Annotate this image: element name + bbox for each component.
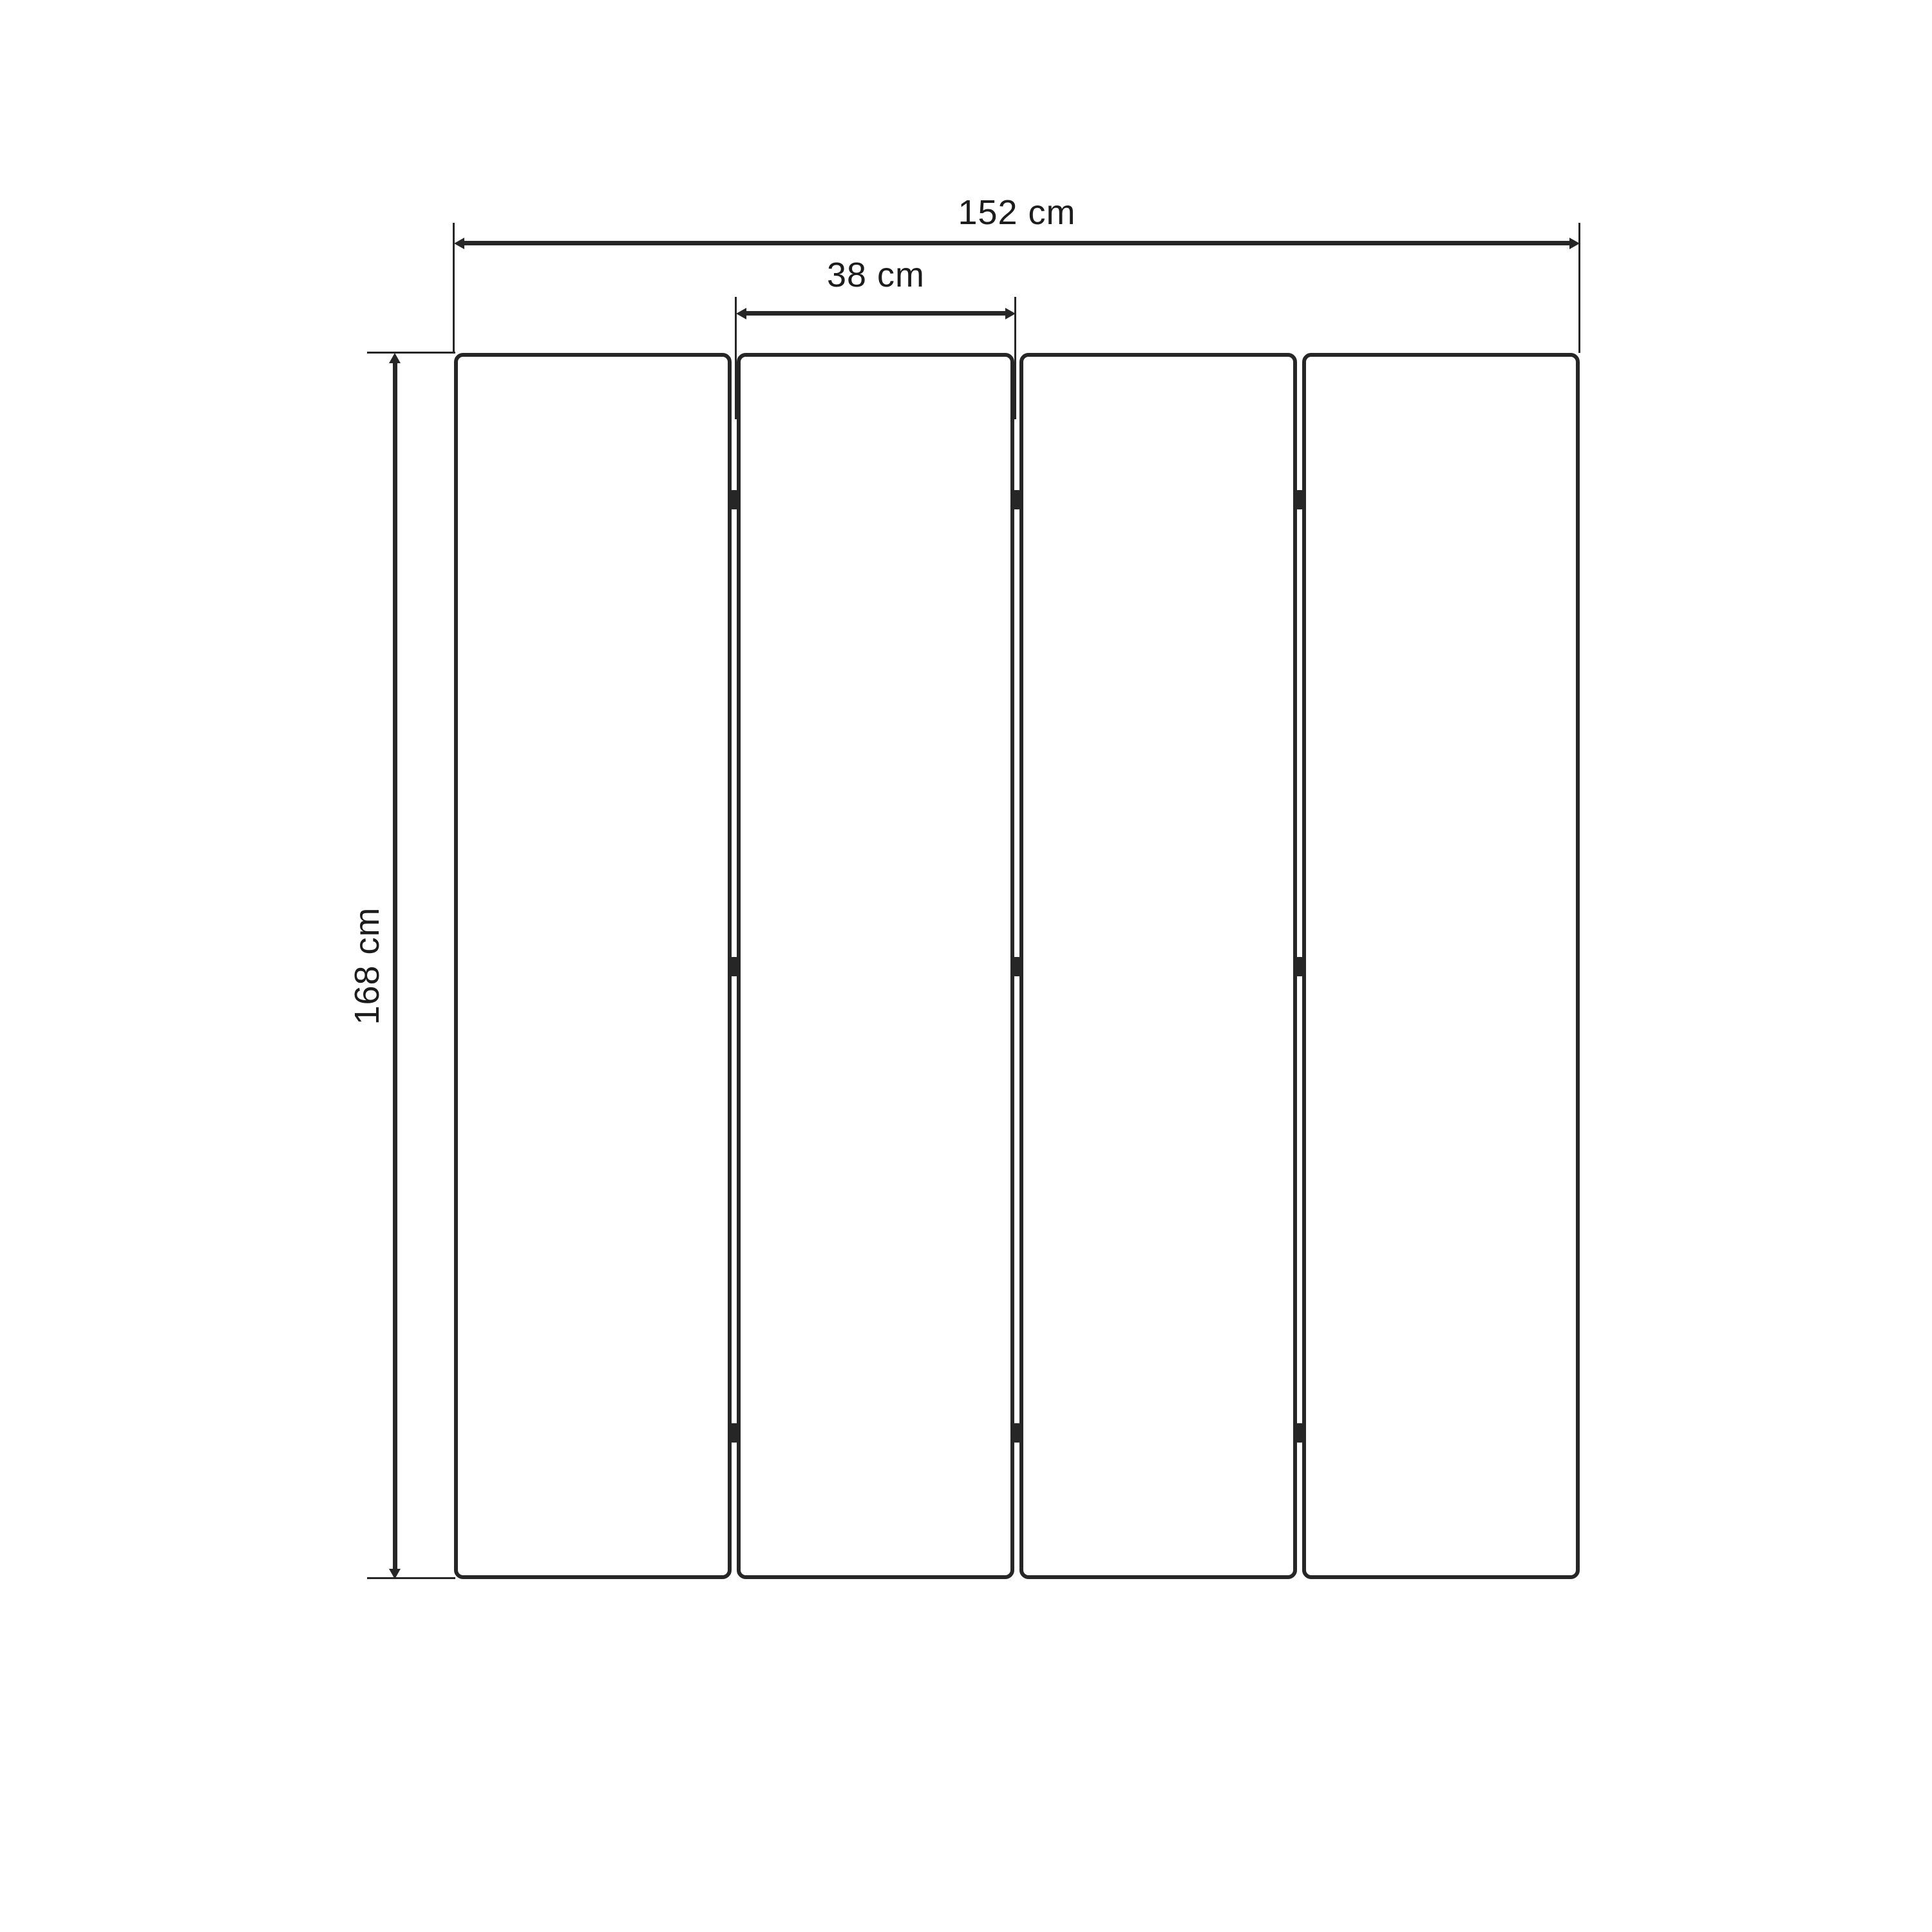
height-dimension-label: 168 cm	[347, 907, 387, 1025]
panel-width-arrow-left-icon	[736, 308, 746, 319]
hinge-gap1-middle	[730, 957, 738, 976]
hinge-gap3-top	[1296, 490, 1303, 509]
panel-2	[737, 353, 1014, 1579]
panel-4	[1302, 353, 1580, 1579]
hinge-gap2-top	[1013, 490, 1021, 509]
width-dimension-line	[463, 241, 1571, 245]
panel-3	[1019, 353, 1297, 1579]
height-extension-line-bottom	[367, 1577, 455, 1579]
hinge-gap3-bottom	[1296, 1423, 1303, 1443]
folding-screen-dimension-diagram: 152 cm 38 cm 168 cm	[0, 0, 1932, 1932]
height-arrow-down-icon	[389, 1569, 401, 1579]
width-arrow-right-icon	[1569, 238, 1580, 249]
hinge-gap1-top	[730, 490, 738, 509]
width-arrow-left-icon	[454, 238, 464, 249]
hinge-gap1-bottom	[730, 1423, 738, 1443]
hinge-gap3-middle	[1296, 957, 1303, 976]
panel-width-dimension-label: 38 cm	[827, 255, 925, 295]
height-extension-line-top	[367, 352, 455, 354]
width-dimension-label: 152 cm	[958, 193, 1075, 232]
panel-width-arrow-right-icon	[1005, 308, 1016, 319]
hinge-gap2-bottom	[1013, 1423, 1021, 1443]
height-dimension-line	[393, 362, 397, 1570]
hinge-gap2-middle	[1013, 957, 1021, 976]
panel-width-dimension-line	[745, 311, 1007, 316]
panel-1	[454, 353, 732, 1579]
height-arrow-up-icon	[389, 353, 401, 363]
